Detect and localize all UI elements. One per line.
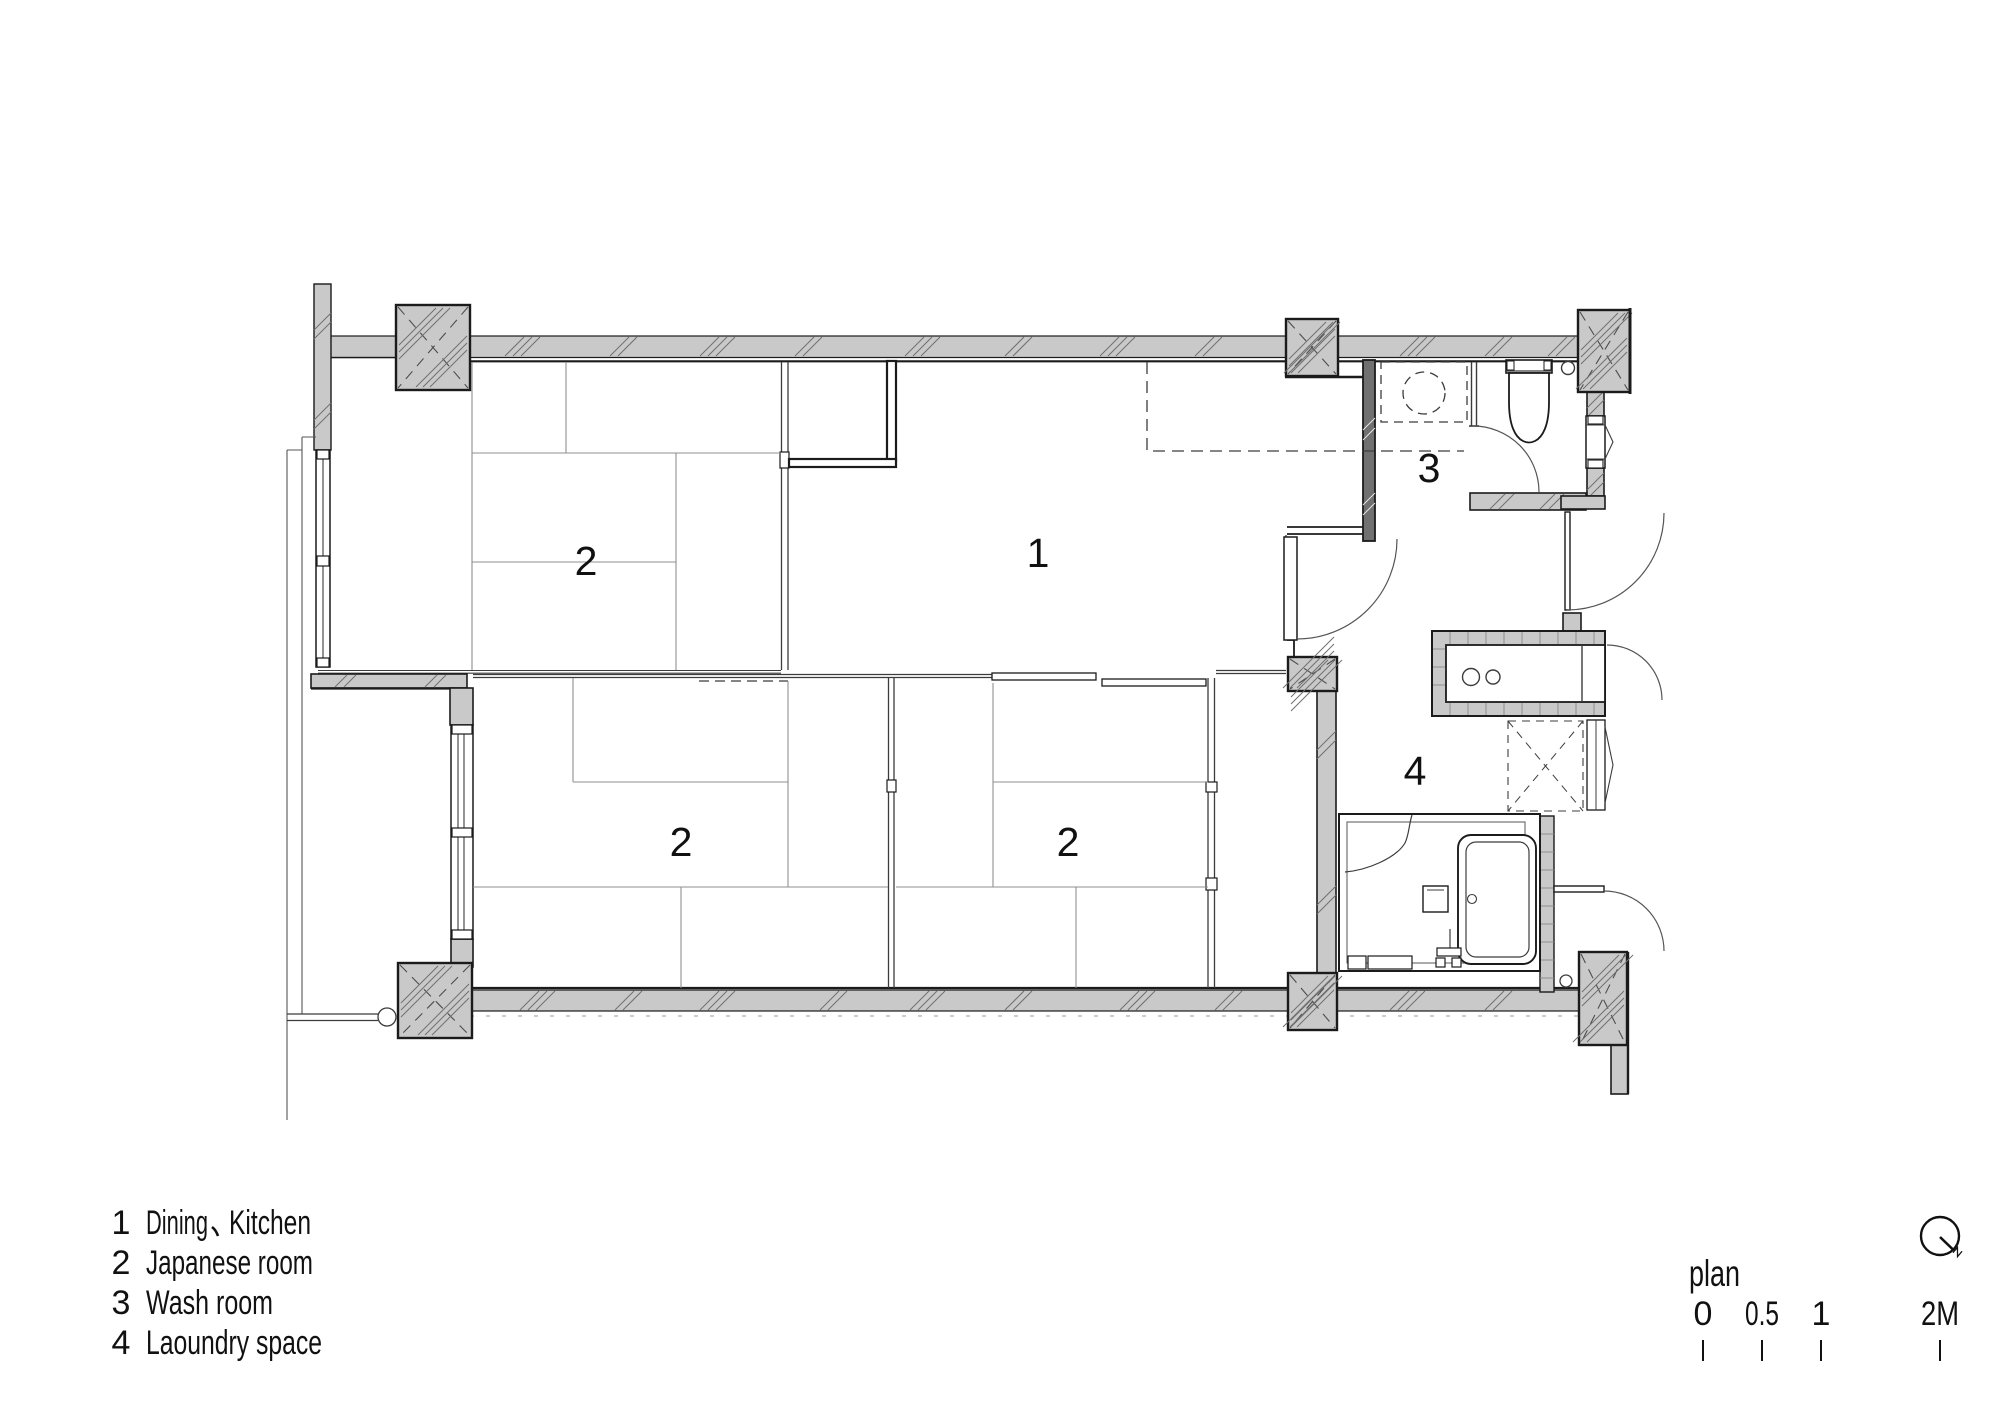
svg-text:2: 2 — [112, 1244, 131, 1282]
svg-text:Laoundry space: Laoundry space — [146, 1324, 322, 1362]
svg-text:1: 1 — [112, 1204, 131, 1242]
svg-text:4: 4 — [1404, 748, 1427, 794]
svg-text:plan: plan — [1689, 1253, 1740, 1294]
svg-text:2: 2 — [575, 538, 598, 584]
svg-text:0: 0 — [1694, 1295, 1713, 1333]
svg-text:Japanese room: Japanese room — [146, 1244, 313, 1282]
svg-text:Wash room: Wash room — [146, 1284, 273, 1322]
svg-text:3: 3 — [112, 1284, 131, 1322]
svg-text:4: 4 — [112, 1324, 131, 1362]
svg-text:2: 2 — [1057, 819, 1080, 865]
svg-text:0.5: 0.5 — [1745, 1295, 1779, 1333]
svg-text:3: 3 — [1418, 445, 1441, 491]
svg-text:2M: 2M — [1921, 1295, 1959, 1333]
svg-text:Dining: Dining — [146, 1204, 208, 1242]
svg-text:Kitchen: Kitchen — [229, 1204, 311, 1242]
svg-text:1: 1 — [1812, 1295, 1831, 1333]
svg-text:1: 1 — [1027, 530, 1050, 576]
svg-text:2: 2 — [670, 819, 693, 865]
